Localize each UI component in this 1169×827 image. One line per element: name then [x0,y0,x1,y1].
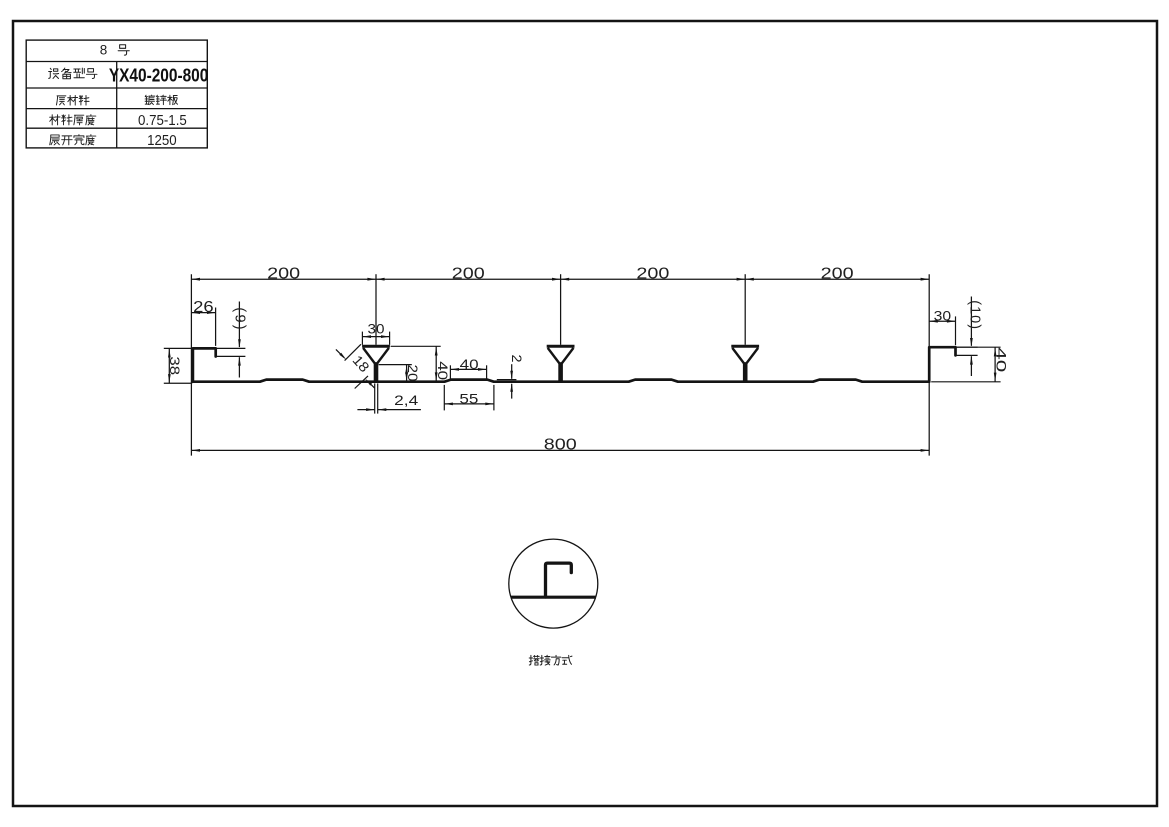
svg-text:200: 200 [267,266,300,283]
svg-text:YX40-200-800: YX40-200-800 [109,65,209,86]
svg-text:2: 2 [509,354,525,362]
svg-text:200: 200 [636,266,669,283]
svg-text:200: 200 [821,266,854,283]
svg-text:200: 200 [452,266,485,283]
svg-text:40: 40 [435,361,451,380]
svg-text:30: 30 [934,308,952,324]
svg-text:8: 8 [100,43,108,58]
svg-text:20: 20 [405,365,421,382]
svg-text:30: 30 [368,321,385,337]
svg-text:0.75-1.5: 0.75-1.5 [138,113,187,129]
svg-text:55: 55 [459,390,478,406]
svg-text:800: 800 [544,437,577,454]
svg-text:(9): (9) [231,307,247,331]
svg-text:40: 40 [460,356,479,372]
svg-text:40: 40 [994,347,1010,372]
svg-text:2,4: 2,4 [394,392,418,408]
svg-text:(10): (10) [967,300,983,330]
svg-text:1250: 1250 [147,132,177,149]
svg-text:38: 38 [167,356,183,375]
svg-text:26: 26 [193,299,214,316]
